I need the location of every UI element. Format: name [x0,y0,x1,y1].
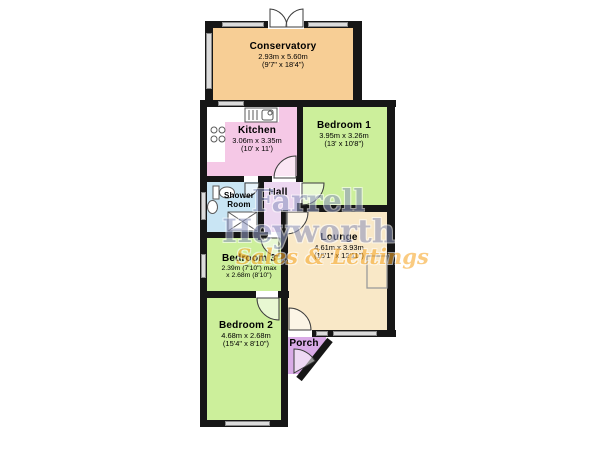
room-dim: (15'4" x 8'10") [201,340,291,349]
room-dim: x 2.68m (8'10") [209,272,289,280]
label-bedroom2: Bedroom 2 4.68m x 2.68m (15'4" x 8'10") [201,320,291,349]
room-lounge [285,212,387,330]
wall [296,176,303,182]
door-opening [268,20,304,29]
window [201,192,206,220]
room-dim: 2.39m (7'10") max [209,265,289,273]
room-name: Conservatory [228,41,338,53]
wall [200,298,207,427]
room-name: Shower Room [221,191,257,209]
room-dim: (9'7" x 18'4") [228,61,338,70]
window [308,22,348,27]
room-name: Bedroom 2 [201,320,291,332]
window [218,101,244,106]
room-name: Porch [282,338,326,350]
wall [281,210,288,238]
window [206,33,212,89]
window [225,421,270,426]
wall [200,291,256,298]
room-bedroom2 [207,298,281,420]
label-conservatory: Conservatory 2.93m x 5.60m (9'7" x 18'4"… [228,41,338,70]
wall [200,100,207,183]
room-dim: (15'1" x 12'11") [292,252,387,261]
label-lounge: Lounge 4.61m x 3.93m (15'1" x 12'11") [292,232,387,261]
window [201,254,206,278]
room-name: Hall [253,187,303,199]
window [333,331,377,336]
label-bedroom3: Bedroom 3 2.39m (7'10") max x 2.68m (8'1… [209,253,289,280]
room-dim: (10' x 11') [212,145,302,154]
wall [200,176,244,182]
label-bedroom1: Bedroom 1 3.95m x 3.26m (13' x 10'8") [299,120,389,149]
room-name: Lounge [292,232,387,244]
wall [200,232,268,238]
window [222,22,264,27]
room-name: Bedroom 3 [209,253,289,265]
wall [353,21,362,107]
label-shower-room: Shower Room [221,191,257,209]
room-name: Kitchen [212,125,302,137]
door-arc-porch-entry [294,349,315,373]
label-kitchen: Kitchen 3.06m x 3.35m (10' x 11') [212,125,302,154]
room-hall-strip [264,205,281,232]
window [316,331,328,336]
label-hall: Hall [253,187,303,199]
room-dim: (13' x 10'8") [299,140,389,149]
room-name: Bedroom 1 [299,120,389,132]
label-porch: Porch [282,338,326,350]
floor-plan: Conservatory 2.93m x 5.60m (9'7" x 18'4"… [0,0,600,472]
wall [300,205,395,212]
